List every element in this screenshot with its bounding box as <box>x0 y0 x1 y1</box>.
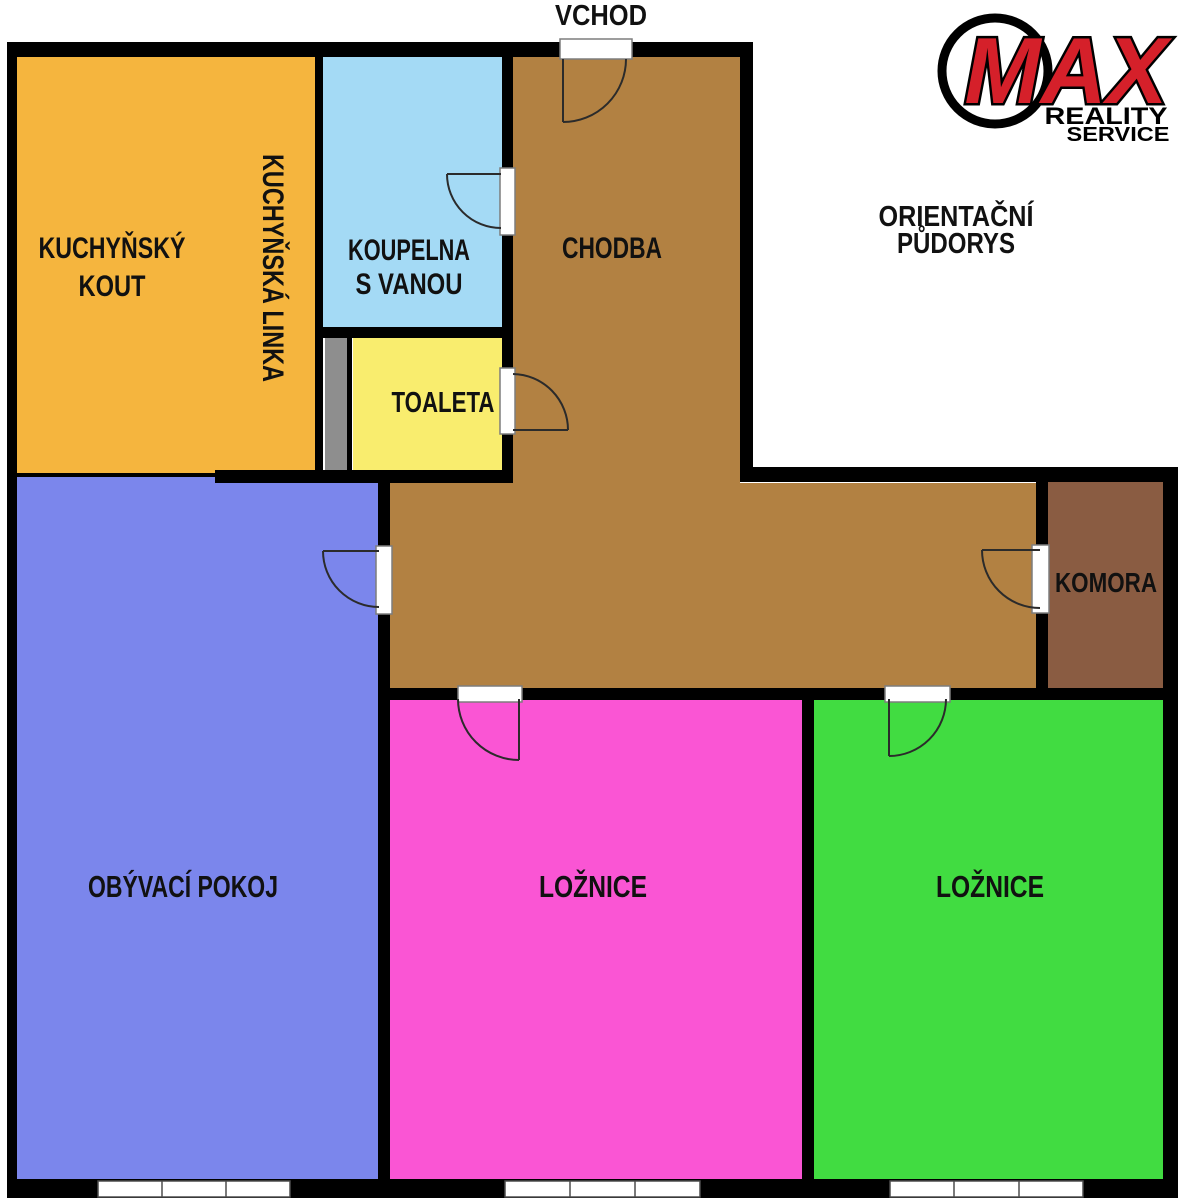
room-hallway-lower <box>390 483 1036 688</box>
entrance-door-opening <box>560 39 632 59</box>
living-window <box>98 1181 290 1197</box>
room-hallway-upper <box>513 57 740 483</box>
wall-toilet-bottom <box>215 470 513 483</box>
kitchen-label-line2: KOUT <box>79 270 146 303</box>
wall-left <box>7 42 17 1197</box>
bathroom-label-line2: S VANOU <box>356 268 463 301</box>
wall-bathroom-bottom <box>323 327 513 338</box>
wall-hallway-right-upper <box>740 42 753 482</box>
utility-shaft <box>325 338 347 472</box>
floor-plan: VCHOD KUCHYŇSKÝ KOUT KUCHYŇSKÁ LINKA KOU… <box>0 0 1180 1200</box>
shaft-toilet-line <box>347 338 352 472</box>
kitchen-label-line1: KUCHYŇSKÝ <box>39 231 186 265</box>
room-bedroom-2 <box>814 700 1163 1179</box>
kitchen-living-divider-line <box>17 473 215 477</box>
wall-kitchen-right <box>315 57 323 473</box>
windows <box>98 1181 1083 1197</box>
bedroom-2-window <box>890 1181 1083 1197</box>
entrance-label: VCHOD <box>555 0 647 32</box>
wall-top-right <box>740 467 1178 482</box>
bedroom-1-door-jamb <box>458 686 522 702</box>
bedroom-1-window <box>505 1181 700 1197</box>
bedroom-2-label: LOŽNICE <box>936 868 1044 904</box>
wall-top <box>7 42 753 57</box>
toilet-door-jamb <box>500 368 515 434</box>
floor-plan-page: VCHOD KUCHYŇSKÝ KOUT KUCHYŇSKÁ LINKA KOU… <box>0 0 1180 1200</box>
storage-door-jamb <box>1032 545 1049 613</box>
living-door-jamb <box>376 546 392 614</box>
room-living <box>17 477 378 1179</box>
bedroom-1-label: LOŽNICE <box>539 868 647 904</box>
room-bedroom-1 <box>390 700 802 1179</box>
logo-service-text: SERVICE <box>1067 124 1170 146</box>
storage-label: KOMORA <box>1055 567 1157 598</box>
living-label: OBÝVACÍ POKOJ <box>88 869 278 904</box>
wall-right <box>1163 467 1178 1198</box>
kitchen-counter-label: KUCHYŇSKÁ LINKA <box>256 154 290 382</box>
bedroom-2-door-jamb <box>885 686 950 702</box>
hallway-label: CHODBA <box>562 232 662 265</box>
bathroom-label-line1: KOUPELNA <box>348 234 470 267</box>
plan-title-line2: PŮDORYS <box>897 224 1015 260</box>
bathroom-door-jamb <box>500 168 515 235</box>
toilet-label: TOALETA <box>392 387 495 419</box>
agency-logo: MAX REALITY SERVICE <box>942 18 1173 146</box>
wall-bedroom-divider <box>802 700 814 1179</box>
